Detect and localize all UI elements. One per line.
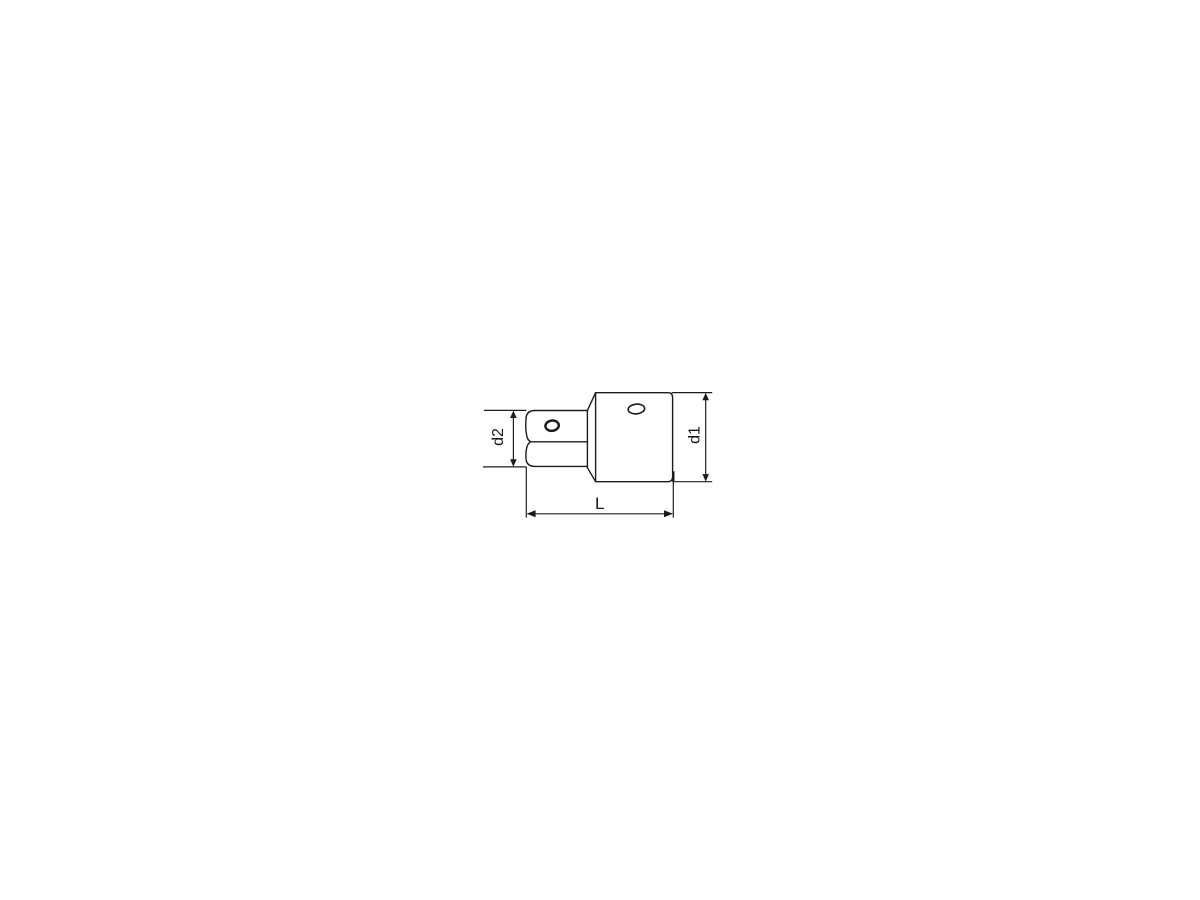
svg-text:L: L — [595, 494, 604, 513]
svg-text:d1: d1 — [686, 426, 703, 444]
svg-text:d2: d2 — [490, 428, 507, 446]
